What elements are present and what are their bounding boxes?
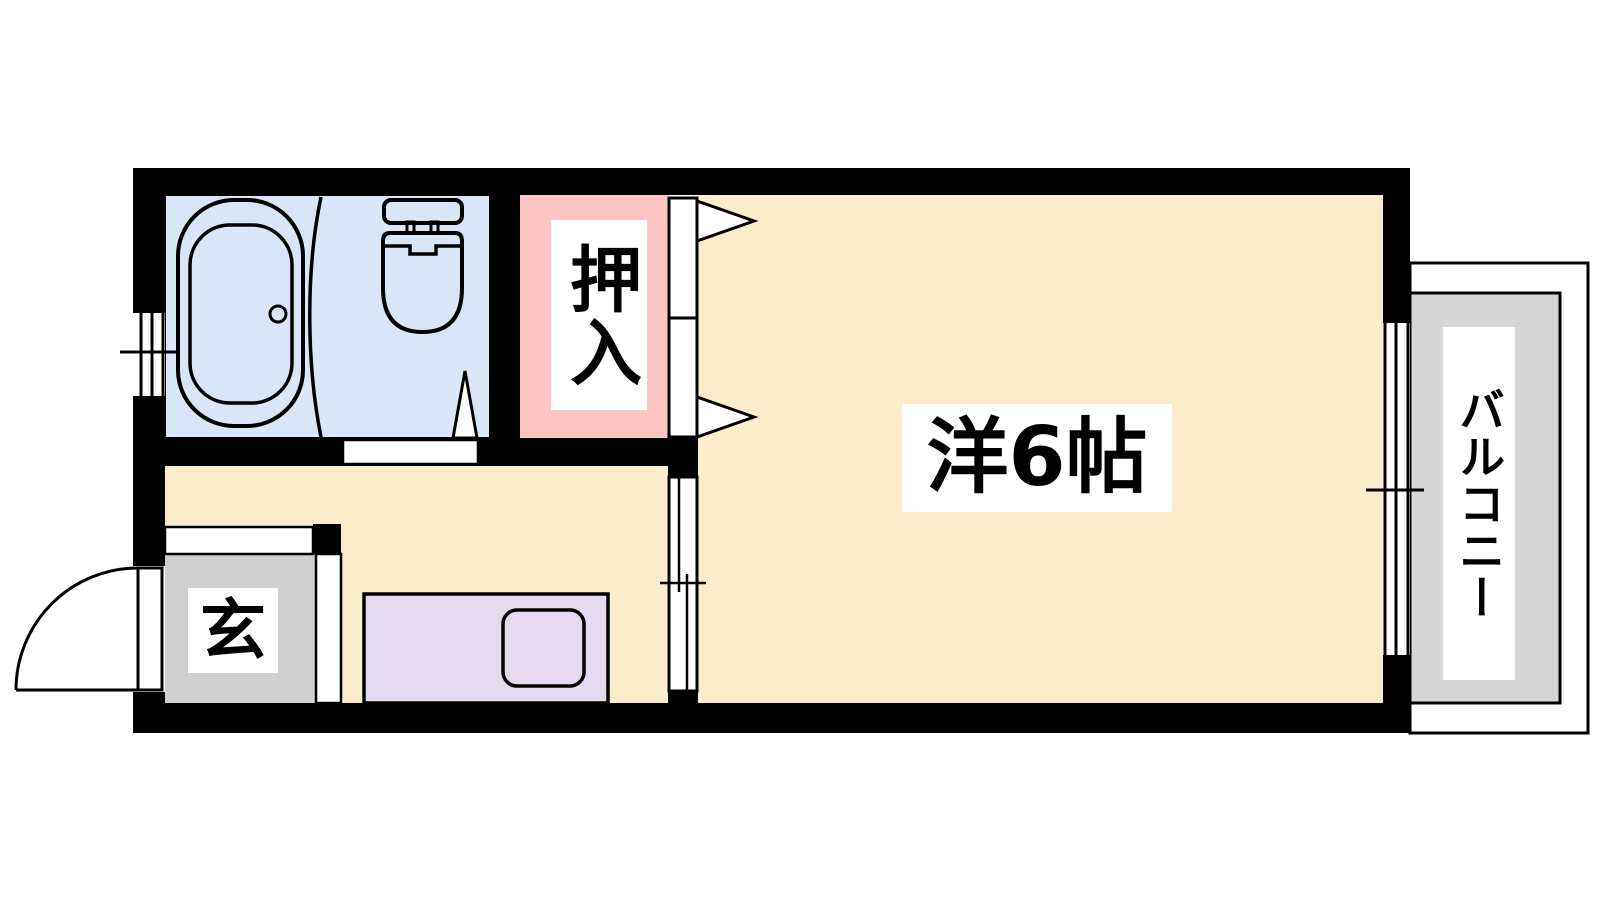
genkan-step-top [165, 527, 313, 554]
genkan-label: 玄 [188, 588, 278, 673]
balcony-label: バルコニー [1443, 327, 1515, 680]
floorplan-page: 押入 玄 洋6帖 バルコニー [0, 0, 1600, 900]
closet-label: 押入 [551, 220, 647, 410]
wall-bath-closet-divider [490, 195, 520, 438]
kitchen-counter-icon [364, 594, 608, 703]
genkan-step-right [316, 554, 341, 703]
western-room-label: 洋6帖 [902, 404, 1172, 512]
wall-bottom [133, 703, 1410, 733]
wall-top [133, 168, 1410, 195]
entrance-door-icon [16, 566, 165, 692]
genkan-step-corner [313, 524, 341, 554]
bathroom-door-threshold [343, 440, 478, 464]
floorplan-drawing [0, 0, 1600, 900]
